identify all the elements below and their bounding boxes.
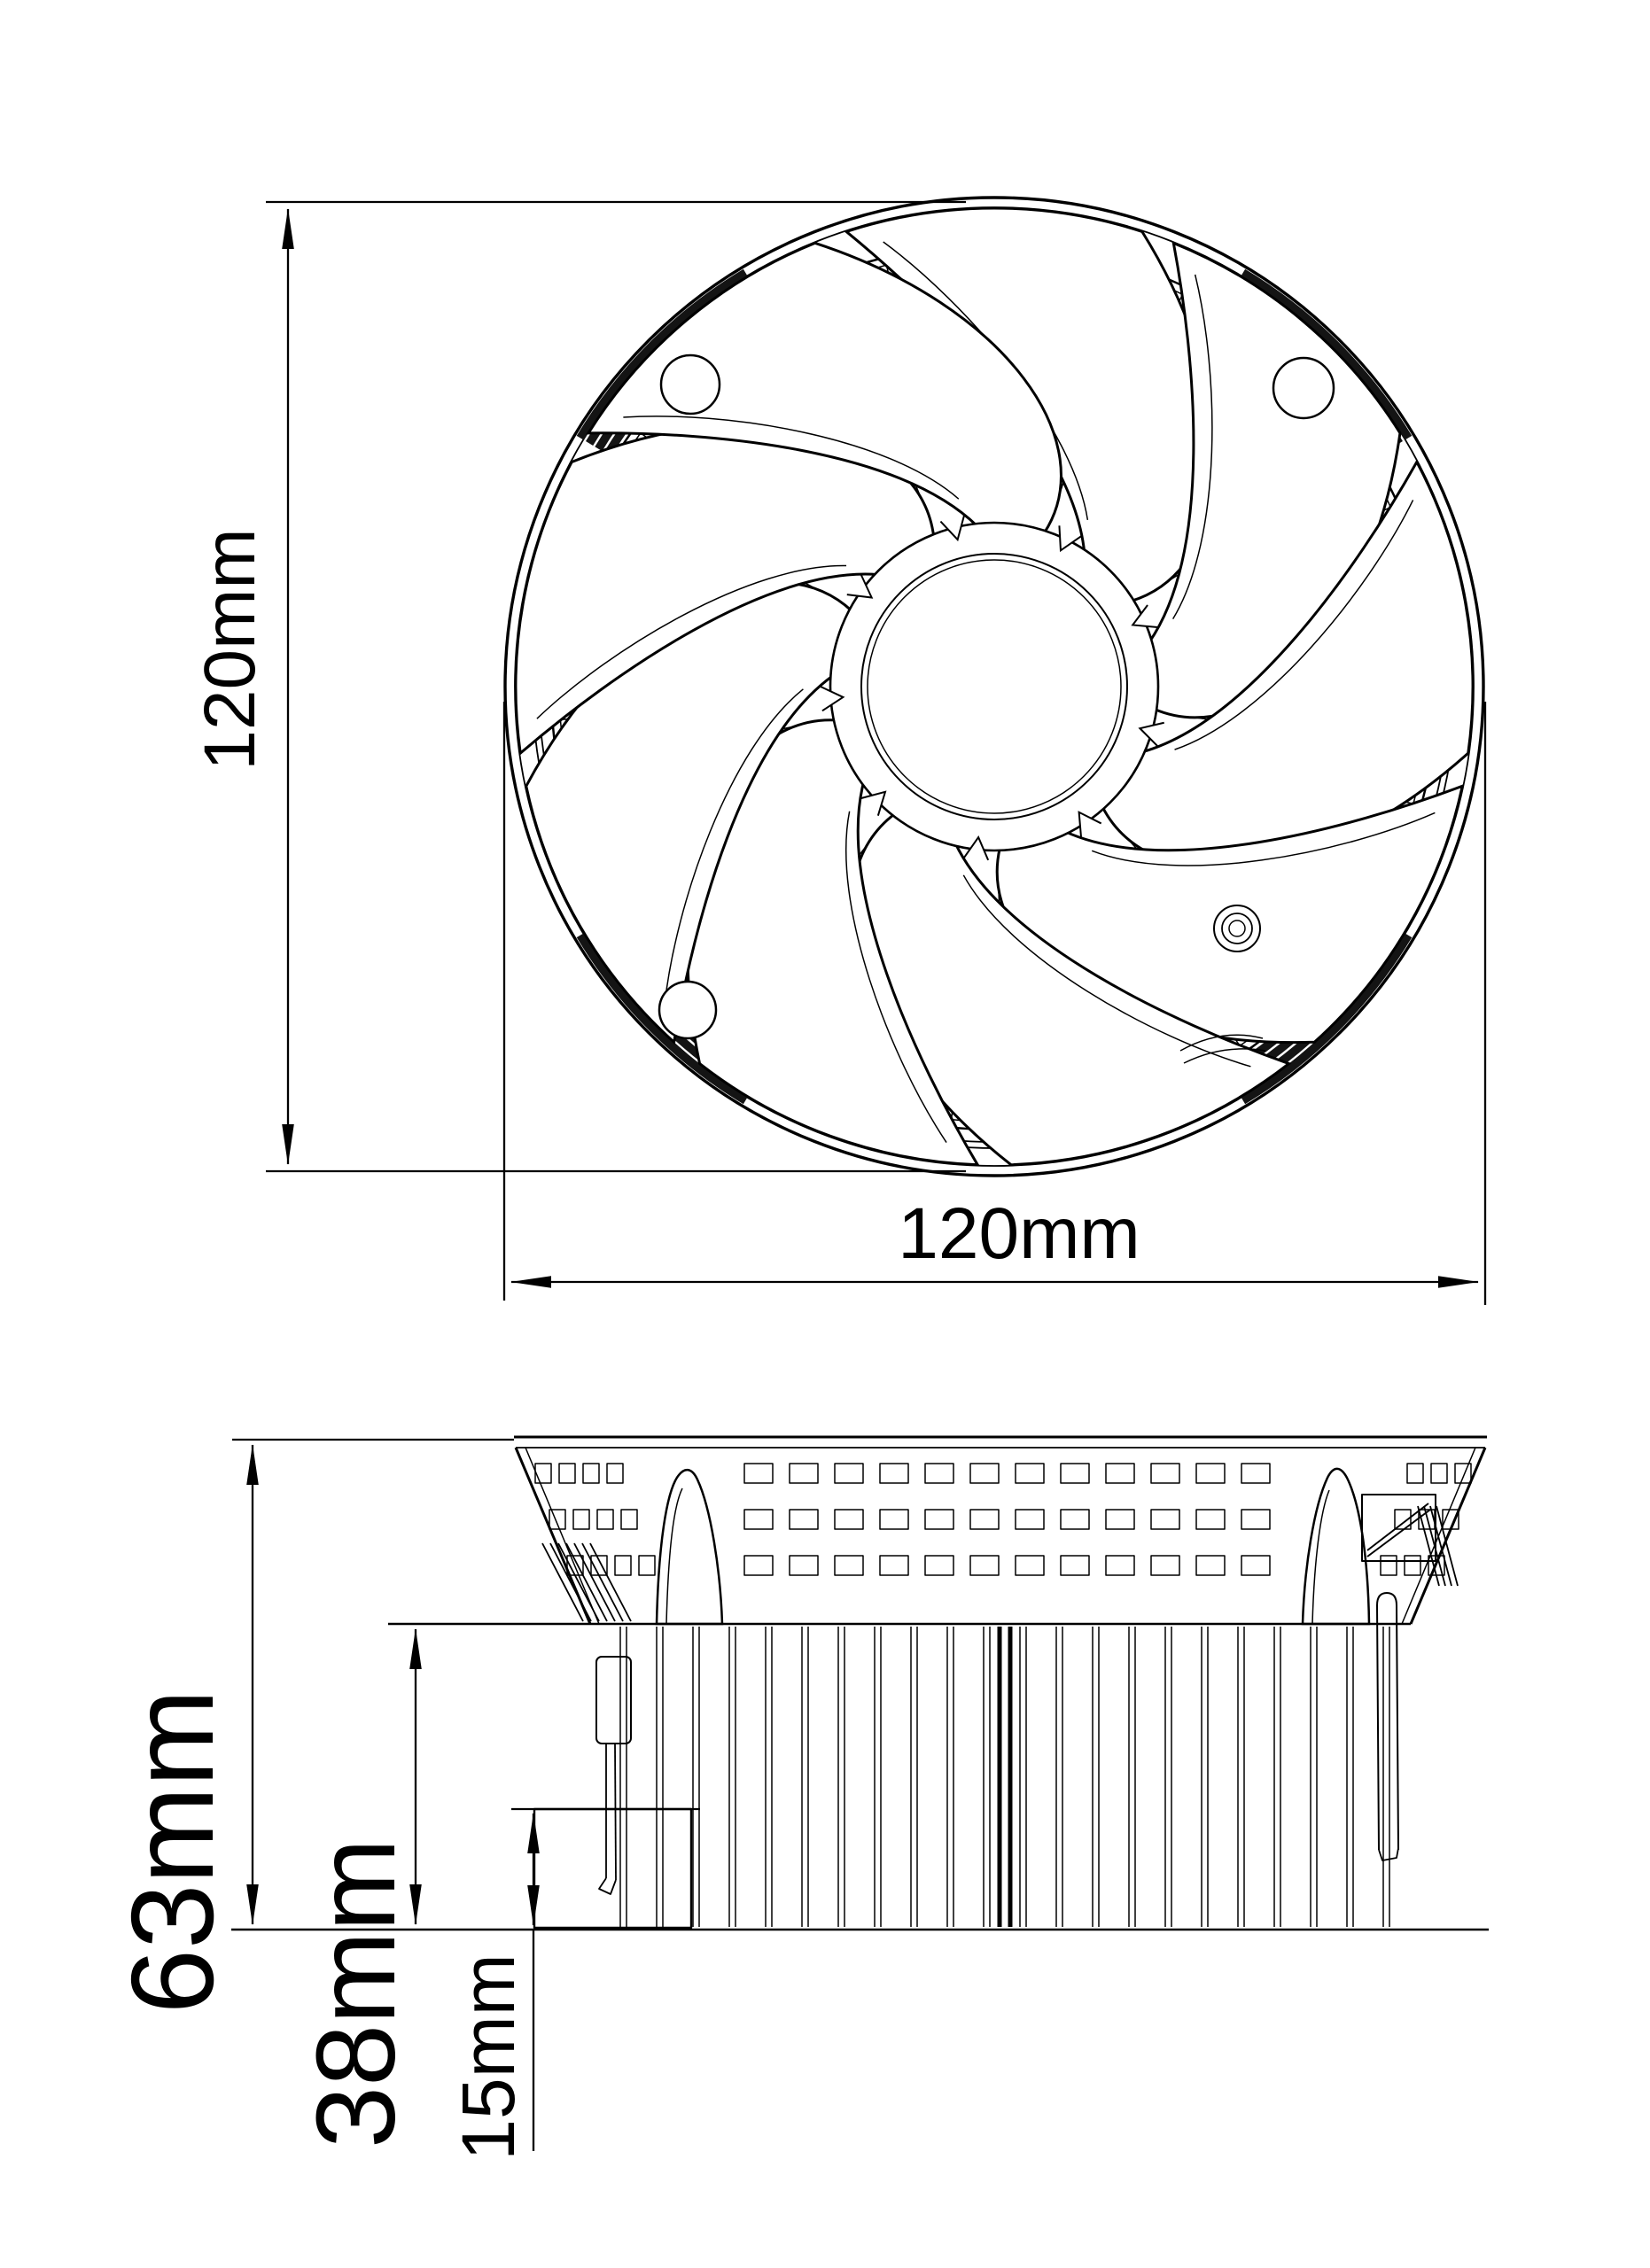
dim-label-fan-height: 120mm xyxy=(190,528,270,770)
fan-top-view: 120mm 120mm xyxy=(190,179,1491,1305)
dim-label-fan-width: 120mm xyxy=(898,1193,1140,1274)
dim-label-total-height: 63mm xyxy=(107,1689,237,2015)
side-blade-tips xyxy=(657,1469,1369,1624)
mounting-clip-left xyxy=(596,1657,631,1894)
cooler-side-view: 63mm 38mm 15mm xyxy=(107,1437,1489,2161)
mounting-clip-right xyxy=(1362,1495,1436,1860)
dimension-base-height: 15mm xyxy=(447,1809,700,2161)
shroud-hatch-right xyxy=(1418,1506,1458,1586)
base-block xyxy=(534,1809,691,1928)
cpu-cooler-dimension-drawing: 120mm 120mm xyxy=(0,0,1650,2268)
screw-boss-top-right xyxy=(1273,358,1334,418)
screw-boss-top-left xyxy=(661,355,720,414)
screw-boss-bottom-left xyxy=(659,982,716,1038)
dim-label-heatsink-height: 38mm xyxy=(293,1838,418,2148)
heatsink-center-column xyxy=(1000,1627,1010,1927)
technical-drawing-page: 120mm 120mm xyxy=(0,0,1650,2268)
shroud-hatch-left xyxy=(542,1543,631,1621)
heatsink-fins xyxy=(620,1627,1389,1927)
dimension-heatsink-height: 38mm xyxy=(293,1629,418,2148)
dim-label-base-height: 15mm xyxy=(447,1953,530,2160)
